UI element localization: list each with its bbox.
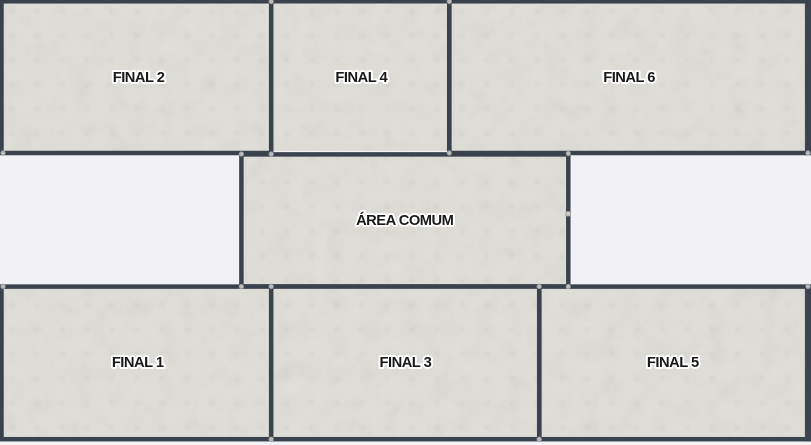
svg-text:FINAL 6: FINAL 6 [603, 70, 655, 86]
svg-text:FINAL 3: FINAL 3 [380, 355, 432, 371]
svg-text:FINAL 4: FINAL 4 [335, 70, 388, 86]
svg-text:ÁREA COMUM: ÁREA COMUM [356, 212, 454, 229]
svg-text:FINAL 5: FINAL 5 [647, 355, 699, 371]
svg-text:FINAL 1: FINAL 1 [112, 355, 164, 371]
svg-text:FINAL 2: FINAL 2 [113, 70, 165, 86]
